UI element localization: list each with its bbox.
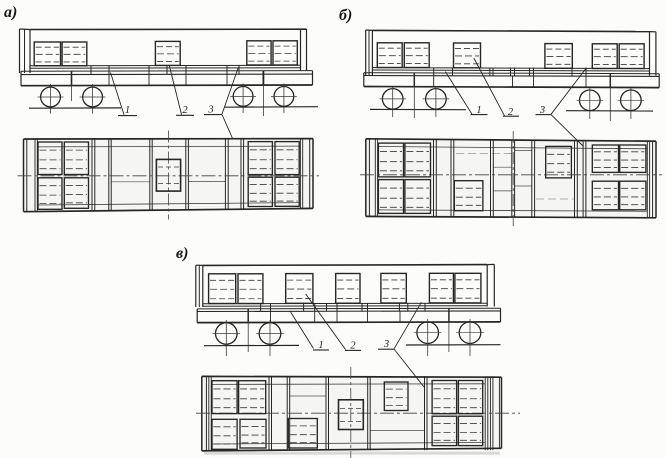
svg-text:1: 1 [125,105,130,116]
svg-text:в): в) [176,245,188,262]
svg-text:3: 3 [207,104,213,115]
svg-text:3: 3 [383,339,389,350]
svg-text:а): а) [4,4,17,21]
svg-text:2: 2 [350,340,356,351]
svg-text:2: 2 [182,105,188,116]
svg-text:б): б) [339,7,352,24]
svg-text:1: 1 [318,340,323,351]
